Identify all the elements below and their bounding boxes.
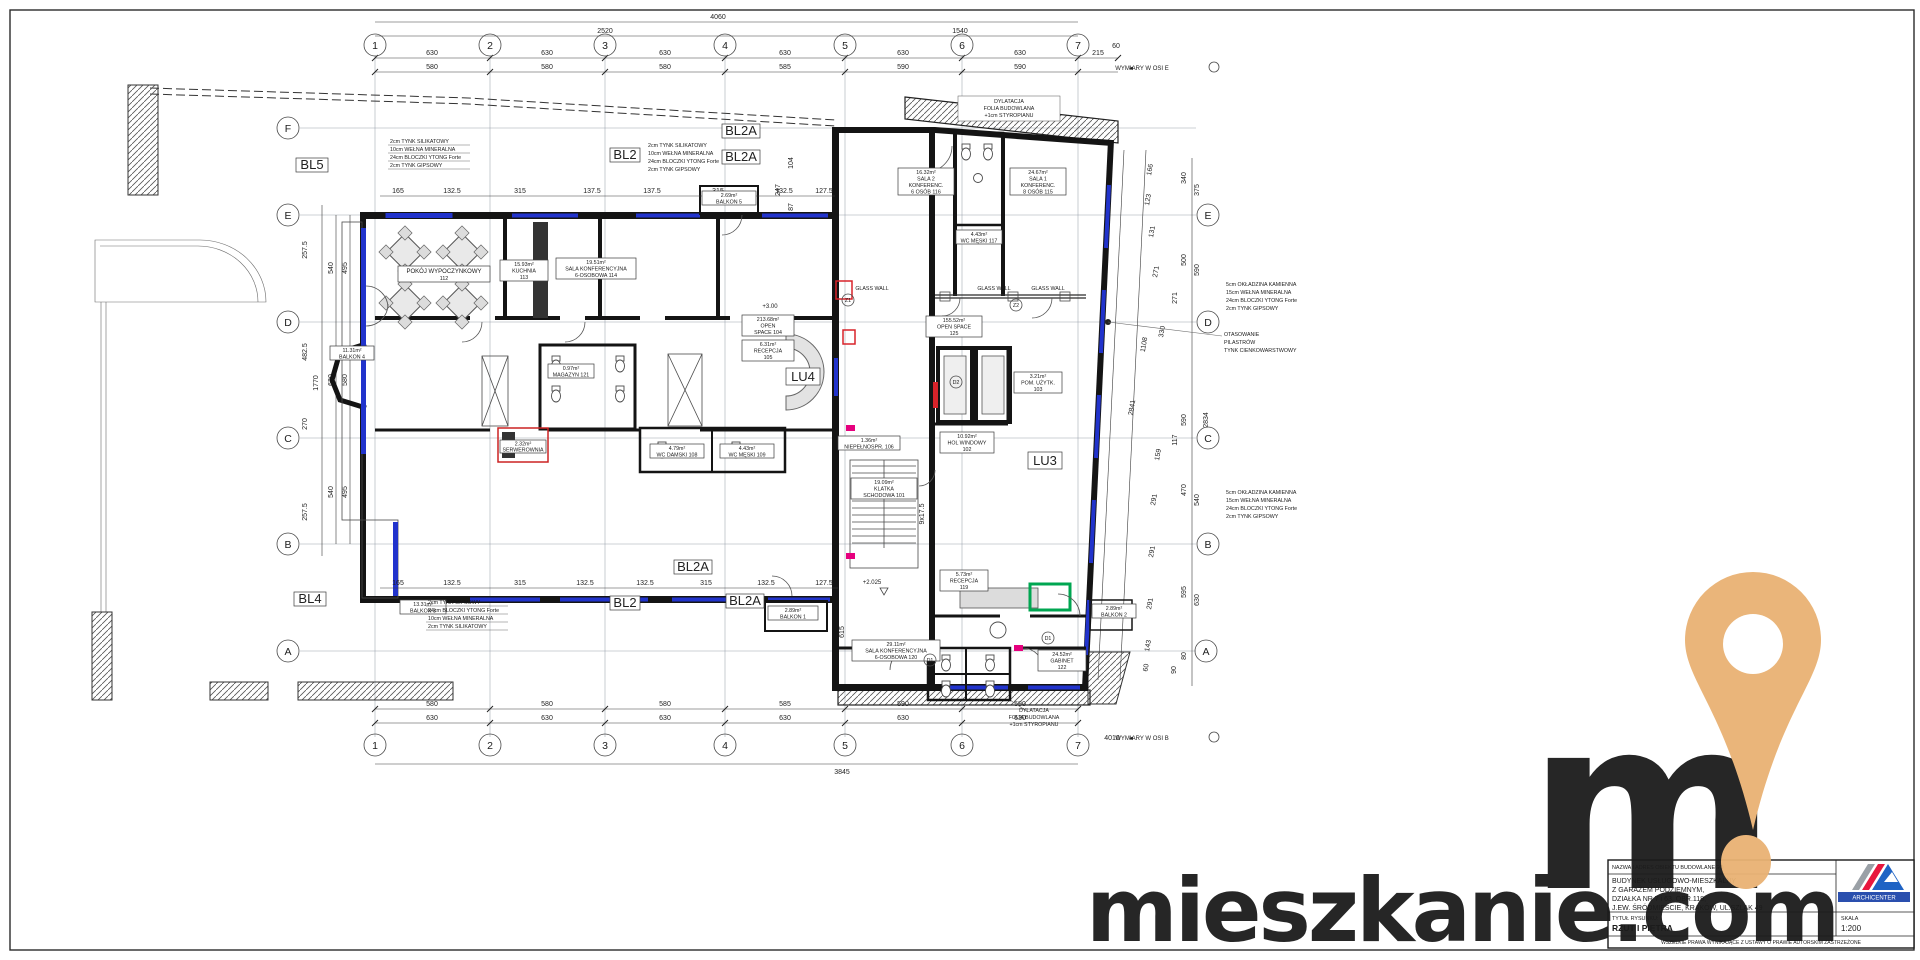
svg-text:OPEN SPACE: OPEN SPACE <box>937 325 972 331</box>
svg-text:112: 112 <box>440 276 448 282</box>
svg-text:6 OSÓB 116: 6 OSÓB 116 <box>911 189 941 196</box>
svg-text:482.5: 482.5 <box>302 343 309 361</box>
svg-text:24cm BLOCZKI YTONG Forte: 24cm BLOCZKI YTONG Forte <box>1226 506 1297 512</box>
svg-text:B: B <box>284 539 291 551</box>
svg-text:127.5: 127.5 <box>815 580 833 587</box>
svg-text:113: 113 <box>520 275 528 281</box>
svg-text:257.5: 257.5 <box>302 241 309 259</box>
svg-text:BL2A: BL2A <box>725 123 757 138</box>
room-117: 4.43m²WC MĘSKI 117 <box>956 230 1002 245</box>
room-106: 1.36m²NIEPEŁNOSPR. 106 <box>838 436 900 451</box>
svg-text:SCHODOWA 101: SCHODOWA 101 <box>863 493 905 499</box>
room-116: 16.32m²SALA 2KONFERENC.6 OSÓB 116 <box>898 168 954 196</box>
svg-text:D: D <box>284 317 292 329</box>
svg-text:D: D <box>1204 317 1212 329</box>
svg-text:5cm OKŁADZINA KAMIENNA: 5cm OKŁADZINA KAMIENNA <box>1226 282 1297 288</box>
svg-text:125: 125 <box>950 331 959 337</box>
svg-text:SALA 2: SALA 2 <box>917 177 935 183</box>
svg-text:19.09m²: 19.09m² <box>874 480 894 486</box>
svg-text:D1: D1 <box>927 658 934 664</box>
svg-text:E: E <box>1204 210 1211 222</box>
svg-text:2cm TYNK SILIKATOWY: 2cm TYNK SILIKATOWY <box>648 143 707 149</box>
room-102: 10.92m²HOL WINDOWY102 <box>940 432 994 453</box>
svg-text:B: B <box>1204 539 1211 551</box>
svg-text:3845: 3845 <box>834 769 850 776</box>
svg-text:375: 375 <box>1194 184 1201 196</box>
svg-text:RECEPCJA: RECEPCJA <box>754 349 783 355</box>
svg-text:495: 495 <box>342 486 349 498</box>
svg-text:2.69m²: 2.69m² <box>721 193 738 199</box>
svg-text:GLASS WALL: GLASS WALL <box>977 286 1010 292</box>
svg-text:19.51m²: 19.51m² <box>586 260 606 266</box>
svg-text:6.31m²: 6.31m² <box>760 342 777 348</box>
svg-text:2cm TYNK GIPSOWY: 2cm TYNK GIPSOWY <box>648 167 701 173</box>
svg-text:2: 2 <box>487 40 493 52</box>
svg-text:BL2: BL2 <box>613 595 636 610</box>
svg-text:630: 630 <box>426 715 438 722</box>
room-125: 155.52m²OPEN SPACE125 <box>926 316 982 337</box>
svg-text:630: 630 <box>1194 594 1201 606</box>
svg-text:6: 6 <box>959 740 965 752</box>
svg-text:SALA KONFERENCYJNA: SALA KONFERENCYJNA <box>865 649 927 655</box>
svg-text:MAGAZYN 121: MAGAZYN 121 <box>553 373 590 379</box>
floor-plan-drawing: 4060 2520 1540 630630 630630 630630 2156… <box>0 0 1920 960</box>
svg-text:LU4: LU4 <box>791 369 815 384</box>
svg-text:213.68m²: 213.68m² <box>757 317 780 323</box>
svg-text:132.5: 132.5 <box>757 580 775 587</box>
svg-text:165: 165 <box>392 188 404 195</box>
wymiary-osi-b-label: WYMIARY W OSI B <box>1115 736 1168 742</box>
svg-text:KLATKA: KLATKA <box>874 487 894 493</box>
svg-text:215: 215 <box>1092 50 1104 57</box>
room-121: 0.97m²MAGAZYN 121 <box>548 364 594 379</box>
svg-text:24cm BLOCZKI YTONG Forte: 24cm BLOCZKI YTONG Forte <box>428 608 499 614</box>
svg-text:580: 580 <box>541 64 553 71</box>
svg-text:SPACE 104: SPACE 104 <box>754 330 782 336</box>
svg-text:585: 585 <box>779 64 791 71</box>
svg-text:FOLIA BUDOWLANA: FOLIA BUDOWLANA <box>1009 715 1060 721</box>
svg-text:C: C <box>1204 433 1212 445</box>
svg-text:NIEPEŁNOSPR. 106: NIEPEŁNOSPR. 106 <box>844 445 894 451</box>
room-113: 15.93m²KUCHNIA113 <box>500 260 548 281</box>
svg-text:117: 117 <box>1172 434 1179 445</box>
balkon-4: 11.31m²BALKON 4 <box>330 346 374 361</box>
svg-text:DYLATACJA: DYLATACJA <box>994 99 1024 105</box>
svg-text:132.5: 132.5 <box>443 188 461 195</box>
svg-text:10cm WEŁNA MINERALNA: 10cm WEŁNA MINERALNA <box>648 151 714 157</box>
svg-text:630: 630 <box>897 715 909 722</box>
svg-text:BL2: BL2 <box>613 147 636 162</box>
svg-text:0.97m²: 0.97m² <box>563 366 580 372</box>
svg-text:BL2A: BL2A <box>677 559 709 574</box>
balkon-5: 2.69m²BALKON 5 <box>702 191 756 206</box>
svg-text:5cm OKŁADZINA KAMIENNA: 5cm OKŁADZINA KAMIENNA <box>1226 490 1297 496</box>
svg-text:80: 80 <box>1181 652 1188 660</box>
svg-text:615: 615 <box>839 626 846 638</box>
svg-text:2.89m²: 2.89m² <box>1106 606 1123 612</box>
svg-text:KONFERENC.: KONFERENC. <box>909 183 944 189</box>
svg-text:3.21m²: 3.21m² <box>1030 374 1047 380</box>
svg-text:540: 540 <box>328 486 335 498</box>
svg-text:137.5: 137.5 <box>583 188 601 195</box>
svg-text:630: 630 <box>541 50 553 57</box>
svg-text:590: 590 <box>1181 414 1188 426</box>
svg-text:122: 122 <box>1058 665 1067 671</box>
svg-text:540: 540 <box>1194 494 1201 506</box>
svg-text:60: 60 <box>1112 43 1120 50</box>
svg-text:PILASTRÓW: PILASTRÓW <box>1224 339 1255 346</box>
svg-text:GLASS WALL: GLASS WALL <box>1031 286 1064 292</box>
svg-text:29.11m²: 29.11m² <box>886 642 905 648</box>
svg-text:F: F <box>285 123 291 135</box>
svg-text:630: 630 <box>541 715 553 722</box>
svg-text:580: 580 <box>426 701 438 708</box>
room-109: 4.43m²WC MĘSKI 109 <box>720 444 774 459</box>
svg-text:540: 540 <box>328 262 335 274</box>
svg-text:580: 580 <box>342 374 349 386</box>
svg-text:4.43m²: 4.43m² <box>739 446 756 452</box>
svg-text:137.5: 137.5 <box>643 188 661 195</box>
svg-text:1: 1 <box>372 740 378 752</box>
svg-text:11.31m²: 11.31m² <box>342 348 361 354</box>
svg-text:630: 630 <box>1014 50 1026 57</box>
svg-text:580: 580 <box>426 64 438 71</box>
svg-text:2cm TYNK GIPSOWY: 2cm TYNK GIPSOWY <box>428 600 481 606</box>
svg-text:9x17.5: 9x17.5 <box>919 503 926 524</box>
svg-text:470: 470 <box>1181 484 1188 496</box>
svg-text:630: 630 <box>779 50 791 57</box>
svg-text:3: 3 <box>602 740 608 752</box>
svg-text:BL5: BL5 <box>300 157 323 172</box>
svg-text:4060: 4060 <box>710 14 726 21</box>
svg-text:630: 630 <box>779 715 791 722</box>
svg-text:BL2A: BL2A <box>729 593 761 608</box>
svg-text:5: 5 <box>842 40 848 52</box>
svg-text:2.89m²: 2.89m² <box>785 608 802 614</box>
svg-text:24cm BLOCZKI YTONG Forte: 24cm BLOCZKI YTONG Forte <box>390 155 461 161</box>
svg-text:270: 270 <box>302 418 309 430</box>
svg-text:102: 102 <box>963 447 972 453</box>
svg-text:7: 7 <box>1075 740 1081 752</box>
svg-text:6: 6 <box>959 40 965 52</box>
svg-text:POM. UŻYTK.: POM. UŻYTK. <box>1021 380 1055 387</box>
svg-text:BALKON 2: BALKON 2 <box>1101 613 1127 619</box>
svg-text:OPEN: OPEN <box>760 324 775 330</box>
svg-text:+1cm STYROPIANU: +1cm STYROPIANU <box>984 113 1033 119</box>
svg-text:E: E <box>284 210 291 222</box>
svg-text:10cm WEŁNA MINERALNA: 10cm WEŁNA MINERALNA <box>390 147 456 153</box>
svg-text:+1cm STYROPIANU: +1cm STYROPIANU <box>1009 722 1058 728</box>
svg-text:15.93m²: 15.93m² <box>514 262 534 268</box>
svg-text:A: A <box>284 646 291 658</box>
svg-text:16.32m²: 16.32m² <box>916 170 936 176</box>
svg-text:24cm BLOCZKI YTONG Forte: 24cm BLOCZKI YTONG Forte <box>1226 298 1297 304</box>
svg-text:119: 119 <box>960 585 968 591</box>
svg-text:590: 590 <box>1014 64 1026 71</box>
svg-text:24.52m²: 24.52m² <box>1052 652 1072 658</box>
svg-text:POKÓJ WYPOCZYNKOWY: POKÓJ WYPOCZYNKOWY <box>406 268 481 275</box>
svg-text:2cm TYNK GIPSOWY: 2cm TYNK GIPSOWY <box>1226 306 1279 312</box>
svg-text:WC DAMSKI 108: WC DAMSKI 108 <box>657 453 698 459</box>
svg-text:8 OSÓB 115: 8 OSÓB 115 <box>1023 189 1053 196</box>
svg-text:90: 90 <box>1171 666 1178 674</box>
svg-text:DYLATACJA: DYLATACJA <box>1019 708 1049 714</box>
svg-text:132.5: 132.5 <box>636 580 654 587</box>
svg-text:103: 103 <box>1034 387 1043 393</box>
svg-text:315: 315 <box>700 580 712 587</box>
svg-text:SERWEROWNIA: SERWEROWNIA <box>502 448 544 454</box>
svg-text:4.79m²: 4.79m² <box>669 446 686 452</box>
balkon-2: 2.89m²BALKON 2 <box>1092 604 1136 619</box>
room-122: 24.52m²GABINET122 <box>1038 650 1086 671</box>
svg-text:Z1: Z1 <box>845 298 851 304</box>
room-114: 19.51m²SALA KONFERENCYJNA6-OSOBOWA 114 <box>556 258 636 279</box>
svg-text:RECEPCJA: RECEPCJA <box>950 579 979 585</box>
svg-text:D1: D1 <box>1045 636 1052 642</box>
svg-text:271: 271 <box>1172 292 1179 304</box>
svg-text:KUCHNIA: KUCHNIA <box>512 269 536 275</box>
level-300: +3.00 <box>762 304 778 310</box>
level-2025: +2.025 <box>863 580 882 586</box>
svg-text:315: 315 <box>514 188 526 195</box>
svg-text:2: 2 <box>487 740 493 752</box>
svg-text:2cm TYNK GIPSOWY: 2cm TYNK GIPSOWY <box>390 163 443 169</box>
svg-text:630: 630 <box>659 715 671 722</box>
svg-text:595: 595 <box>1181 586 1188 598</box>
title-block-scale-label: SKALA <box>1841 916 1859 922</box>
svg-text:630: 630 <box>897 50 909 57</box>
svg-text:3: 3 <box>602 40 608 52</box>
svg-text:155.52m²: 155.52m² <box>943 318 966 324</box>
svg-text:580: 580 <box>659 64 671 71</box>
svg-text:1.36m²: 1.36m² <box>861 438 878 444</box>
svg-text:104: 104 <box>788 157 795 169</box>
svg-text:BALKON 5: BALKON 5 <box>716 200 742 206</box>
svg-text:10cm WEŁNA MINERALNA: 10cm WEŁNA MINERALNA <box>428 616 494 622</box>
svg-text:D2: D2 <box>953 380 960 386</box>
svg-text:BALKON 1: BALKON 1 <box>780 615 806 621</box>
svg-text:4: 4 <box>722 40 728 52</box>
room-119: 5.73m²RECEPCJA119 <box>940 570 988 591</box>
svg-text:340: 340 <box>1181 172 1188 184</box>
svg-text:630: 630 <box>426 50 438 57</box>
title-block-scale-value: 1:200 <box>1841 924 1862 933</box>
svg-text:580: 580 <box>659 701 671 708</box>
wymiary-osi-e-label: WYMIARY W OSI E <box>1115 66 1168 72</box>
svg-text:495: 495 <box>342 262 349 274</box>
svg-text:GABINET: GABINET <box>1050 659 1074 665</box>
svg-text:6-OSOBOWA 114: 6-OSOBOWA 114 <box>575 273 617 279</box>
svg-text:BL4: BL4 <box>298 591 321 606</box>
svg-text:24.67m²: 24.67m² <box>1028 170 1048 176</box>
svg-text:15cm WEŁNA MINERALNA: 15cm WEŁNA MINERALNA <box>1226 498 1292 504</box>
svg-text:4.43m²: 4.43m² <box>971 232 988 238</box>
svg-text:257.5: 257.5 <box>302 503 309 521</box>
svg-text:2834: 2834 <box>1203 412 1210 428</box>
svg-text:24cm BLOCZKI YTONG Forte: 24cm BLOCZKI YTONG Forte <box>648 159 719 165</box>
svg-text:Z2: Z2 <box>1013 303 1019 309</box>
svg-text:TYNK CIENKOWARSTWOWY: TYNK CIENKOWARSTWOWY <box>1224 348 1297 354</box>
svg-text:WC MĘSKI 109: WC MĘSKI 109 <box>728 453 765 459</box>
archicenter-logo-text: ARCHICENTER <box>1852 896 1896 902</box>
room-105: 6.31m²RECEPCJA105 <box>742 340 794 361</box>
svg-text:A: A <box>1202 646 1209 658</box>
svg-text:132.5: 132.5 <box>443 580 461 587</box>
svg-text:6-OSOBOWA 120: 6-OSOBOWA 120 <box>875 655 918 661</box>
svg-text:1770: 1770 <box>313 375 320 391</box>
svg-text:1: 1 <box>372 40 378 52</box>
svg-text:315: 315 <box>514 580 526 587</box>
svg-text:2cm TYNK GIPSOWY: 2cm TYNK GIPSOWY <box>1226 514 1279 520</box>
room-115: 24.67m²SALA 1KONFERENC.8 OSÓB 115 <box>1010 168 1066 196</box>
svg-text:87: 87 <box>788 203 795 211</box>
room-serwerownia: 2.32m²SERWEROWNIA <box>500 440 546 454</box>
svg-text:132.5: 132.5 <box>576 580 594 587</box>
svg-text:BALKON 4: BALKON 4 <box>339 355 365 361</box>
svg-text:GLASS WALL: GLASS WALL <box>855 286 888 292</box>
svg-text:BL2A: BL2A <box>725 149 757 164</box>
svg-text:SALA 1: SALA 1 <box>1029 177 1047 183</box>
svg-text:OTASOWANIE: OTASOWANIE <box>1224 332 1260 338</box>
svg-text:C: C <box>284 433 292 445</box>
svg-text:630: 630 <box>659 50 671 57</box>
svg-text:165: 165 <box>392 580 404 587</box>
svg-text:10.92m²: 10.92m² <box>957 434 977 440</box>
svg-text:KONFERENC.: KONFERENC. <box>1021 183 1056 189</box>
balkon-1: 2.89m²BALKON 1 <box>768 606 818 621</box>
room-108: 4.79m²WC DAMSKI 108 <box>650 444 704 459</box>
svg-text:7: 7 <box>1075 40 1081 52</box>
svg-text:500: 500 <box>1181 254 1188 266</box>
svg-text:60: 60 <box>1142 663 1150 672</box>
svg-text:FOLIA BUDOWLANA: FOLIA BUDOWLANA <box>984 106 1035 112</box>
watermark-domain: mieszkanie.com <box>1086 859 1837 960</box>
svg-text:590: 590 <box>897 64 909 71</box>
room-103: 3.21m²POM. UŻYTK.103 <box>1014 372 1062 393</box>
svg-text:WC MĘSKI 117: WC MĘSKI 117 <box>961 239 998 245</box>
svg-text:15cm WEŁNA MINERALNA: 15cm WEŁNA MINERALNA <box>1226 290 1292 296</box>
svg-text:SALA KONFERENCYJNA: SALA KONFERENCYJNA <box>565 267 627 273</box>
svg-text:580: 580 <box>541 701 553 708</box>
svg-text:HOL WINDOWY: HOL WINDOWY <box>948 441 987 447</box>
svg-text:590: 590 <box>1194 264 1201 276</box>
svg-text:2cm TYNK SILIKATOWY: 2cm TYNK SILIKATOWY <box>390 139 449 145</box>
svg-text:4: 4 <box>722 740 728 752</box>
room-112: POKÓJ WYPOCZYNKOWY112 <box>398 266 490 282</box>
room-101: 19.09m²KLATKASCHODOWA 101 <box>851 478 917 499</box>
svg-text:2cm TYNK SILIKATOWY: 2cm TYNK SILIKATOWY <box>428 624 487 630</box>
svg-text:5.73m²: 5.73m² <box>956 572 973 578</box>
svg-text:247: 247 <box>775 184 782 196</box>
svg-text:5: 5 <box>842 740 848 752</box>
svg-text:105: 105 <box>764 355 773 361</box>
floor-plan-sheet: 4060 2520 1540 630630 630630 630630 2156… <box>0 0 1920 960</box>
room-104: 213.68m²OPENSPACE 104 <box>742 315 794 336</box>
svg-text:LU3: LU3 <box>1033 453 1057 468</box>
svg-text:585: 585 <box>779 701 791 708</box>
svg-text:127.5: 127.5 <box>815 188 833 195</box>
